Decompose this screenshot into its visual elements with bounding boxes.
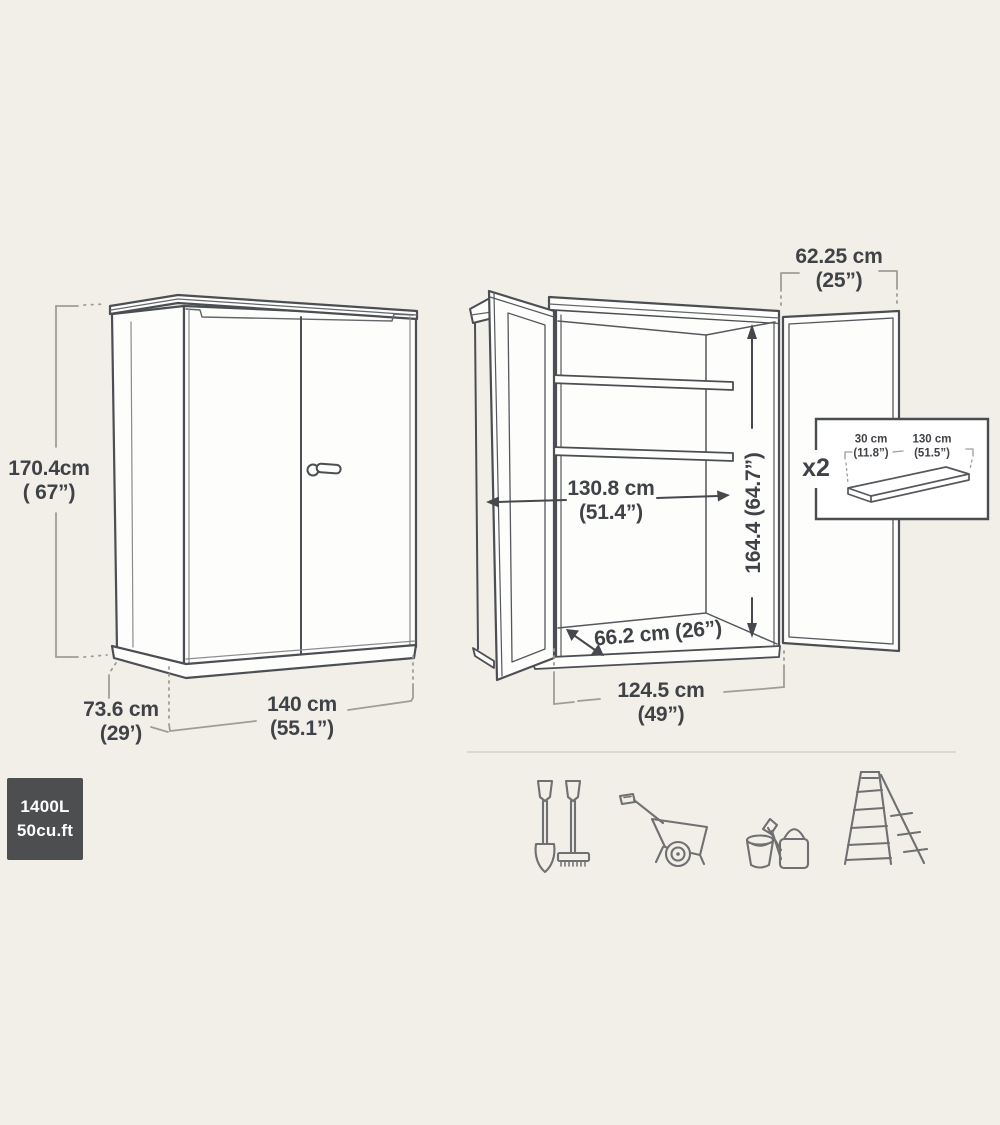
interior-height-label: 164.4 (64.7”) bbox=[742, 452, 766, 573]
capacity-cubic-feet: 50cu.ft bbox=[17, 821, 73, 841]
capacity-badge: 1400L 50cu.ft bbox=[7, 778, 83, 860]
open-door-width-label: 62.25 cm (25”) bbox=[795, 245, 882, 293]
shelf-width-label: 130 cm (51.5”) bbox=[912, 433, 951, 460]
opening-width-label: 124.5 cm (49”) bbox=[617, 679, 704, 727]
shelf-inset-box bbox=[816, 419, 988, 519]
shelf-quantity-label: x2 bbox=[802, 454, 830, 483]
closed-cabinet-drawing bbox=[110, 295, 417, 678]
interior-width-label: 130.8 cm (51.4”) bbox=[567, 477, 654, 525]
ladder-icon bbox=[845, 772, 927, 864]
closed-cabinet-width-label: 140 cm (55.1”) bbox=[267, 693, 337, 741]
shelf-depth-label: 30 cm (11.8”) bbox=[853, 433, 888, 460]
closed-cabinet-height-label: 170.4cm ( 67”) bbox=[8, 457, 90, 505]
bucket-and-watering-can-icon bbox=[747, 819, 808, 868]
storage-icons bbox=[536, 772, 927, 872]
dimension-diagram-page: 170.4cm ( 67”) 73.6 cm (29’) 140 cm (55.… bbox=[0, 0, 1000, 1125]
closed-cabinet-depth-label: 73.6 cm (29’) bbox=[83, 698, 159, 746]
open-left-door bbox=[489, 291, 554, 680]
wheelbarrow-icon bbox=[620, 794, 707, 866]
dimension-diagram-art bbox=[0, 0, 1000, 1125]
capacity-liters: 1400L bbox=[20, 797, 69, 817]
shovel-and-rake-icon bbox=[536, 781, 589, 872]
